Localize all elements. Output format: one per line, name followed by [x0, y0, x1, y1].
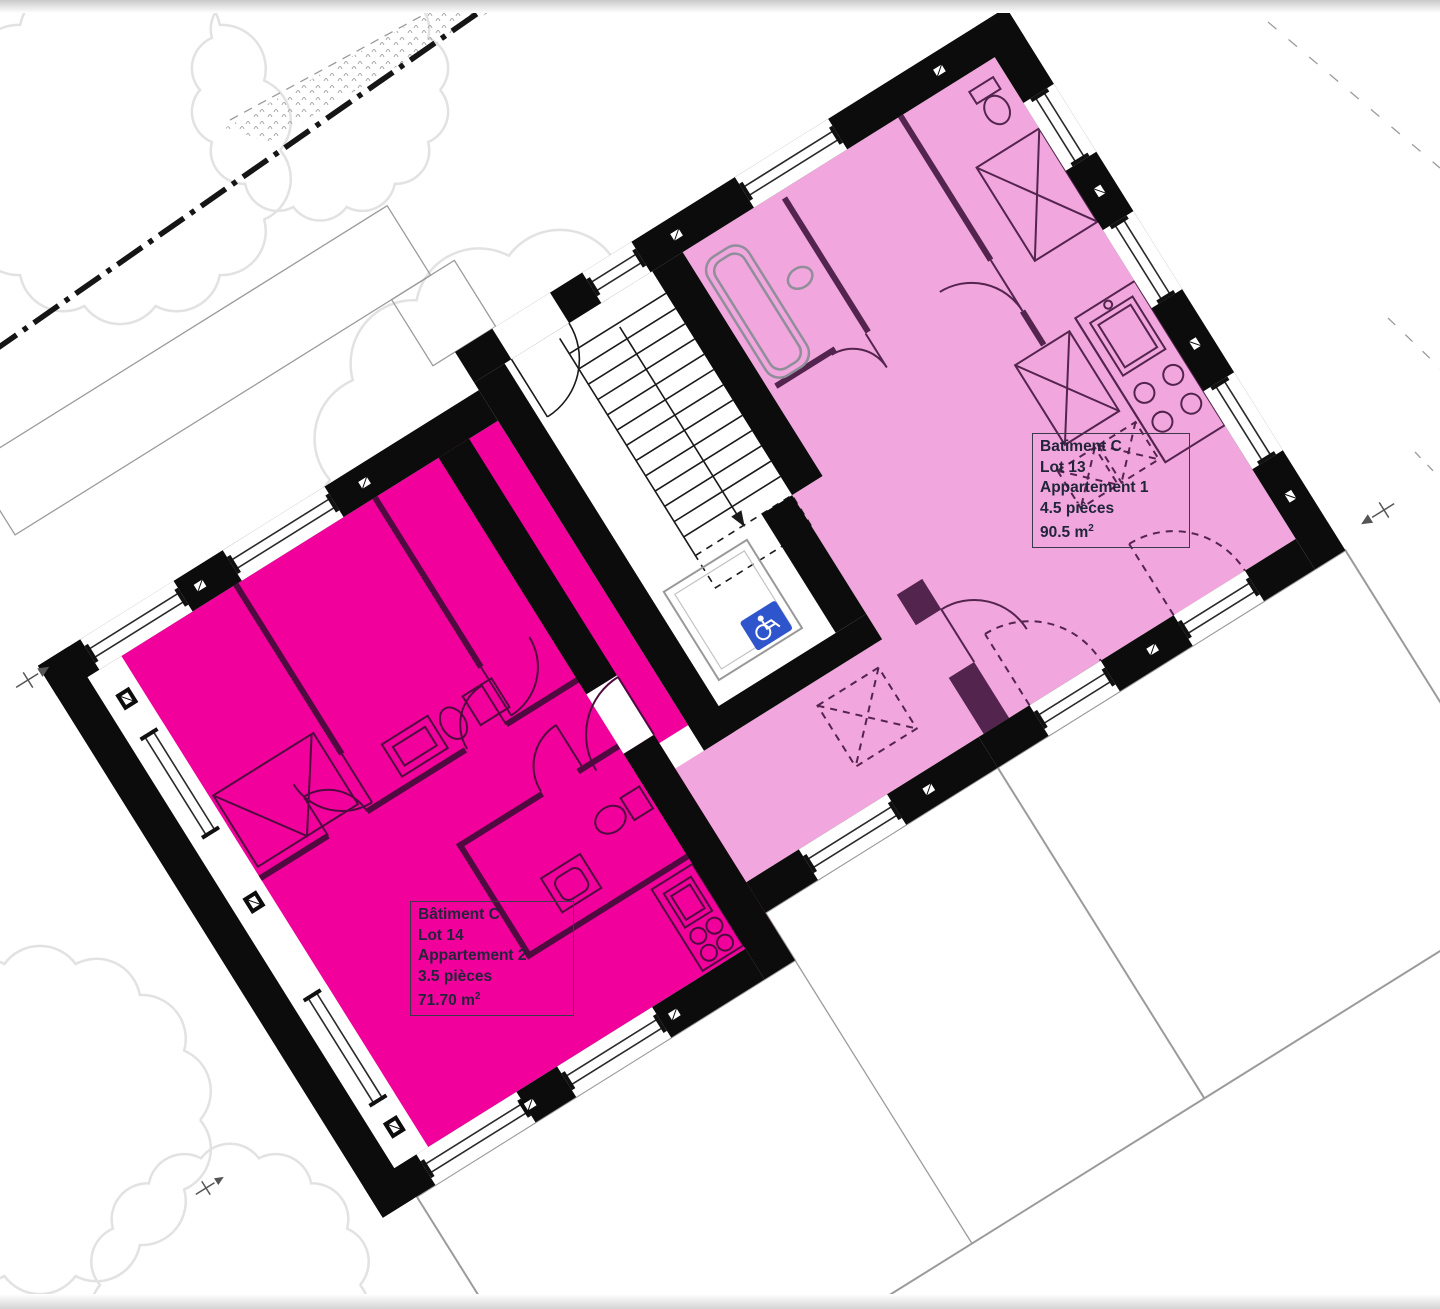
boundary-dashes-top-right: [1268, 22, 1440, 478]
lot13-label-box: Batiment C Lot 13 Appartement 1 4.5 pièc…: [1032, 433, 1190, 548]
floorplan-page: Batiment C Lot 13 Appartement 1 4.5 pièc…: [0, 0, 1440, 1309]
lot13-building: Batiment C: [1040, 437, 1182, 458]
lot13-unit: Appartement 1: [1040, 478, 1182, 499]
wall-fitting-icon: [115, 687, 138, 711]
lot14-label-box: Bâtiment C Lot 14 Appartement 2 3.5 pièc…: [410, 901, 574, 1016]
lot14-lot: Lot 14: [418, 926, 566, 947]
page-bottom-edge: [0, 1294, 1440, 1309]
page-top-edge: [0, 0, 1440, 13]
tree-canopy: [91, 1144, 368, 1309]
lot13-lot: Lot 13: [1040, 458, 1182, 479]
lot14-rooms: 3.5 pièces: [418, 967, 566, 988]
tree-canopy: [0, 0, 291, 324]
lot14-area: 71.70 m2: [418, 987, 566, 1012]
property-boundary-line: [0, 0, 508, 352]
lot14-unit: Appartement 2: [418, 946, 566, 967]
lot13-rooms: 4.5 pièces: [1040, 499, 1182, 520]
lot13-area: 90.5 m2: [1040, 519, 1182, 544]
floor-plan-svg: [0, 0, 1440, 1309]
wall-fitting-icon: [383, 1115, 406, 1139]
lot14-building: Bâtiment C: [418, 905, 566, 926]
wall-fitting-icon: [242, 890, 265, 914]
tree-canopy: [0, 946, 211, 1294]
